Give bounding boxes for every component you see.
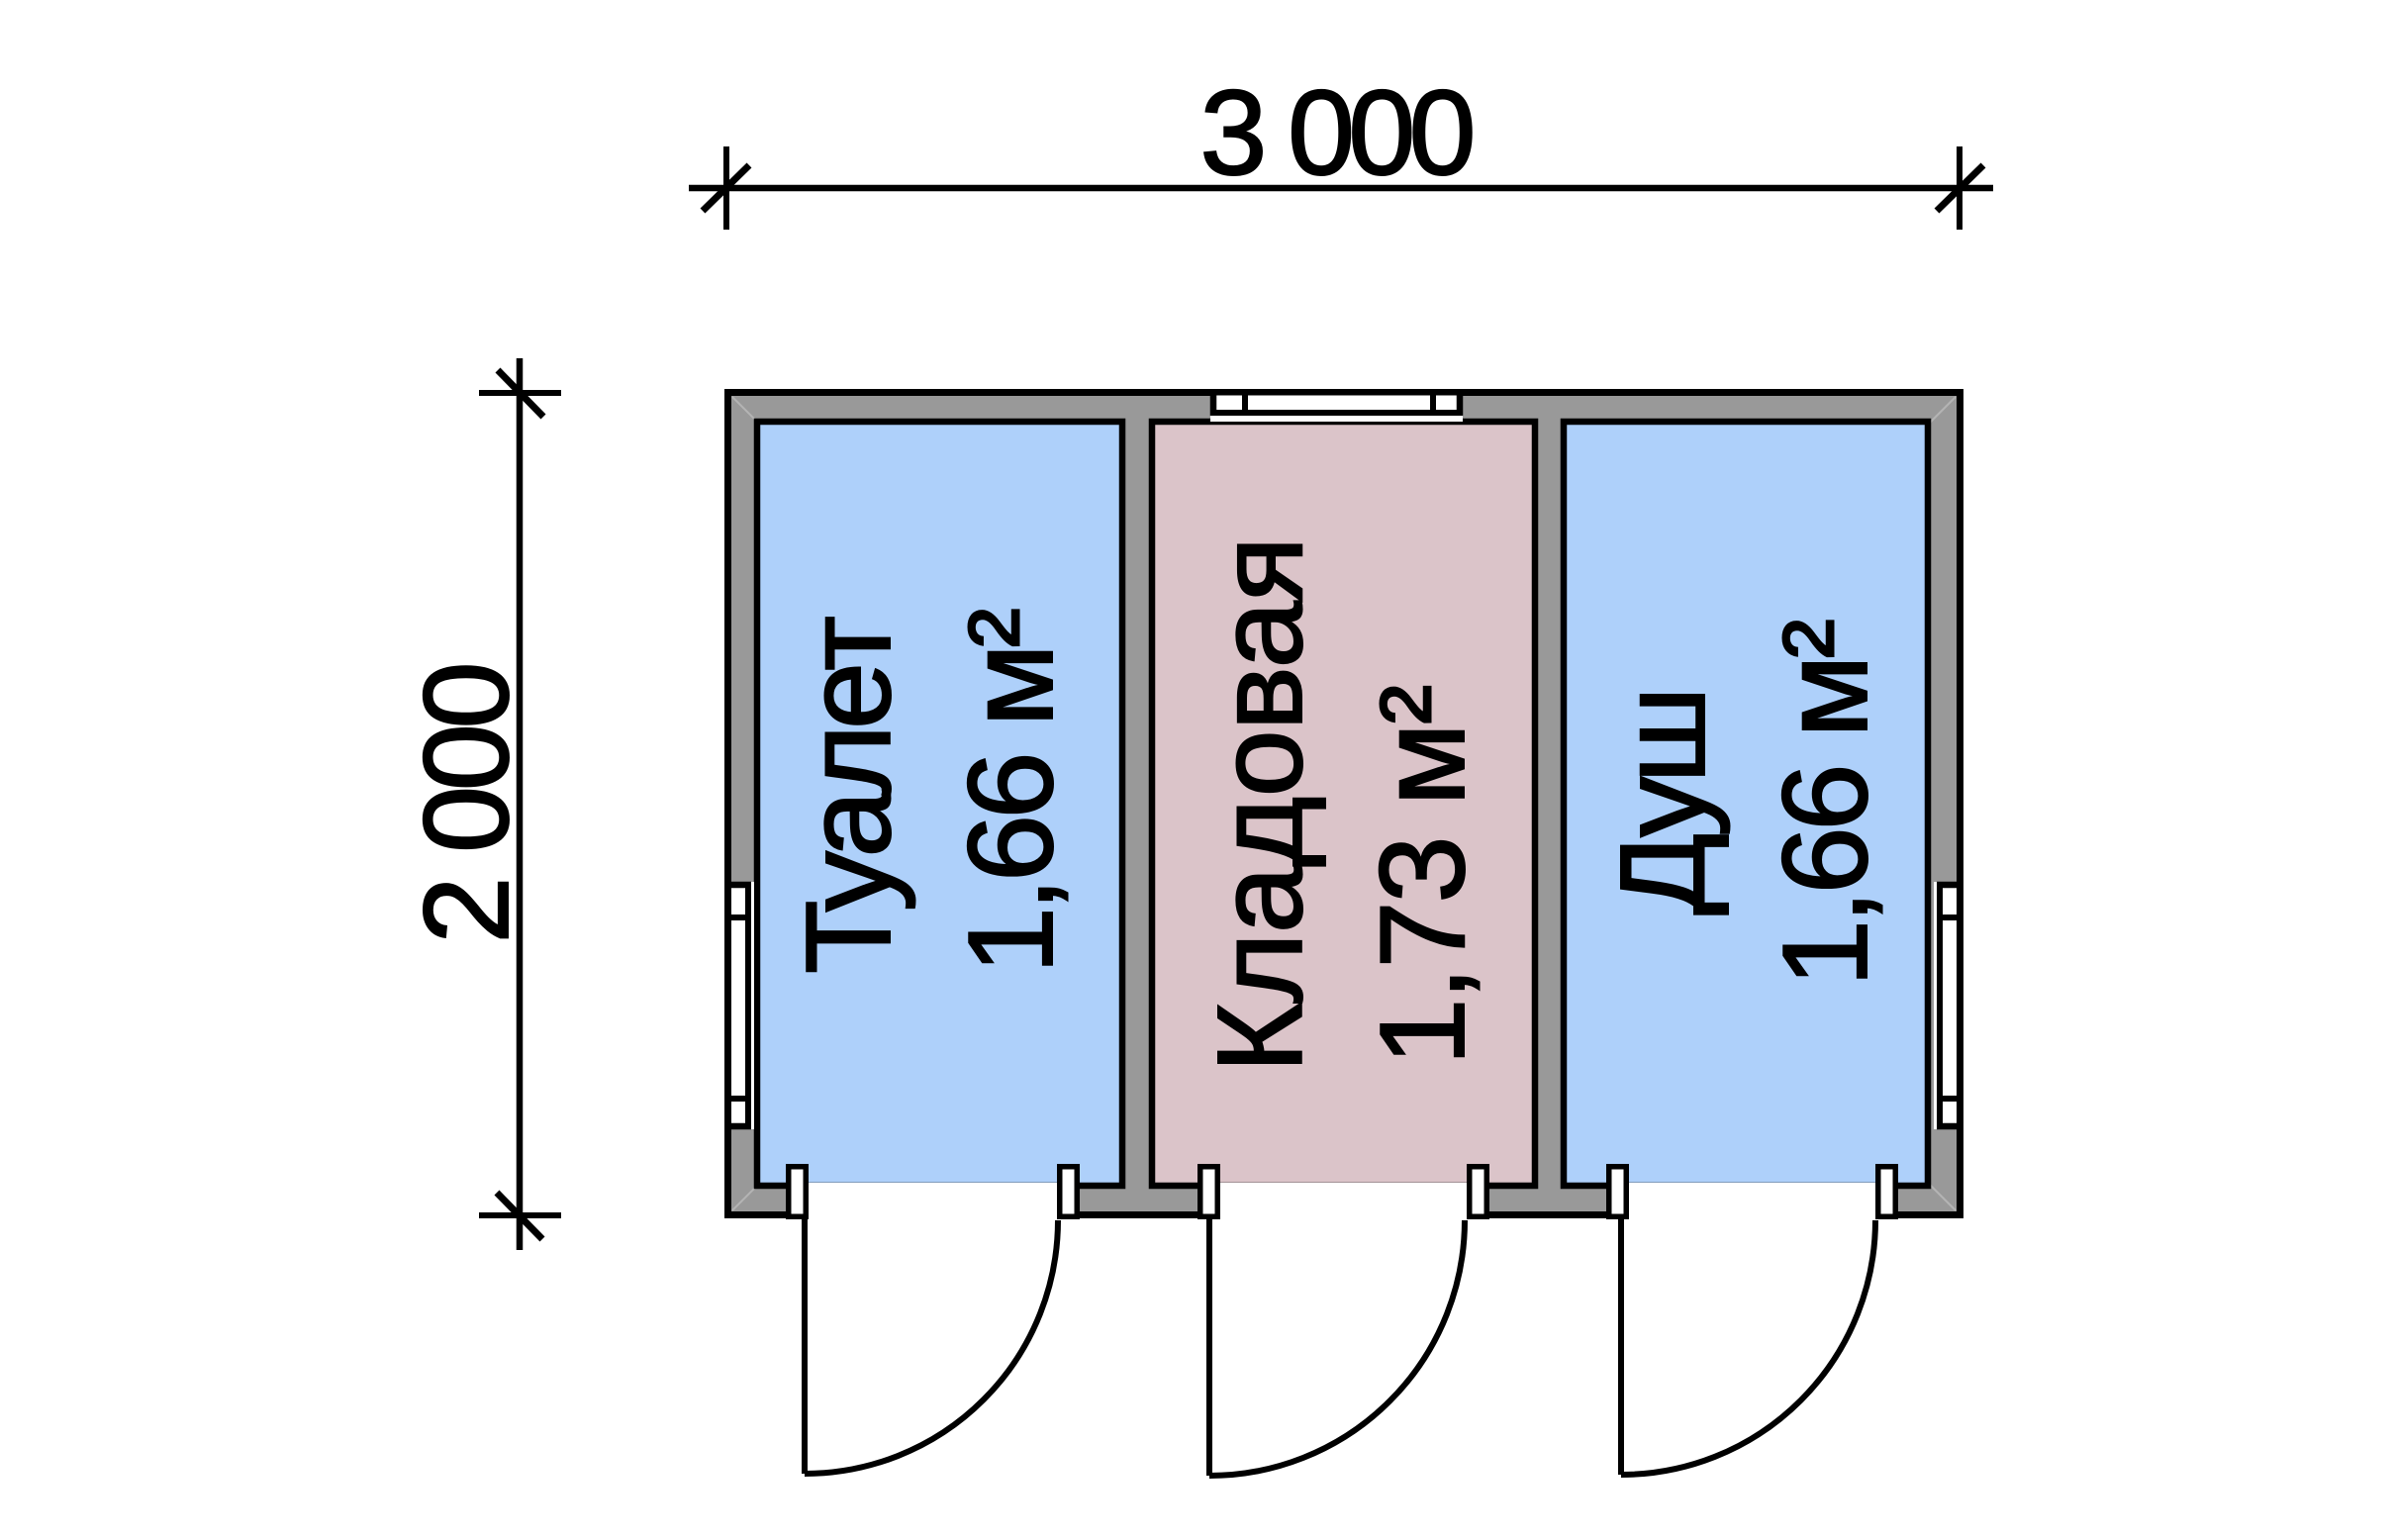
svg-text:1,73 м²: 1,73 м² xyxy=(1355,685,1489,1066)
svg-text:Кладовая: Кладовая xyxy=(1193,536,1327,1073)
svg-text:2 000: 2 000 xyxy=(399,662,533,944)
svg-text:1,66 м²: 1,66 м² xyxy=(1758,619,1892,987)
svg-text:Душ: Душ xyxy=(1595,687,1730,915)
svg-text:3 000: 3 000 xyxy=(1200,65,1477,200)
svg-text:Туалет: Туалет xyxy=(781,616,915,974)
svg-text:1,66 м²: 1,66 м² xyxy=(943,608,1078,974)
